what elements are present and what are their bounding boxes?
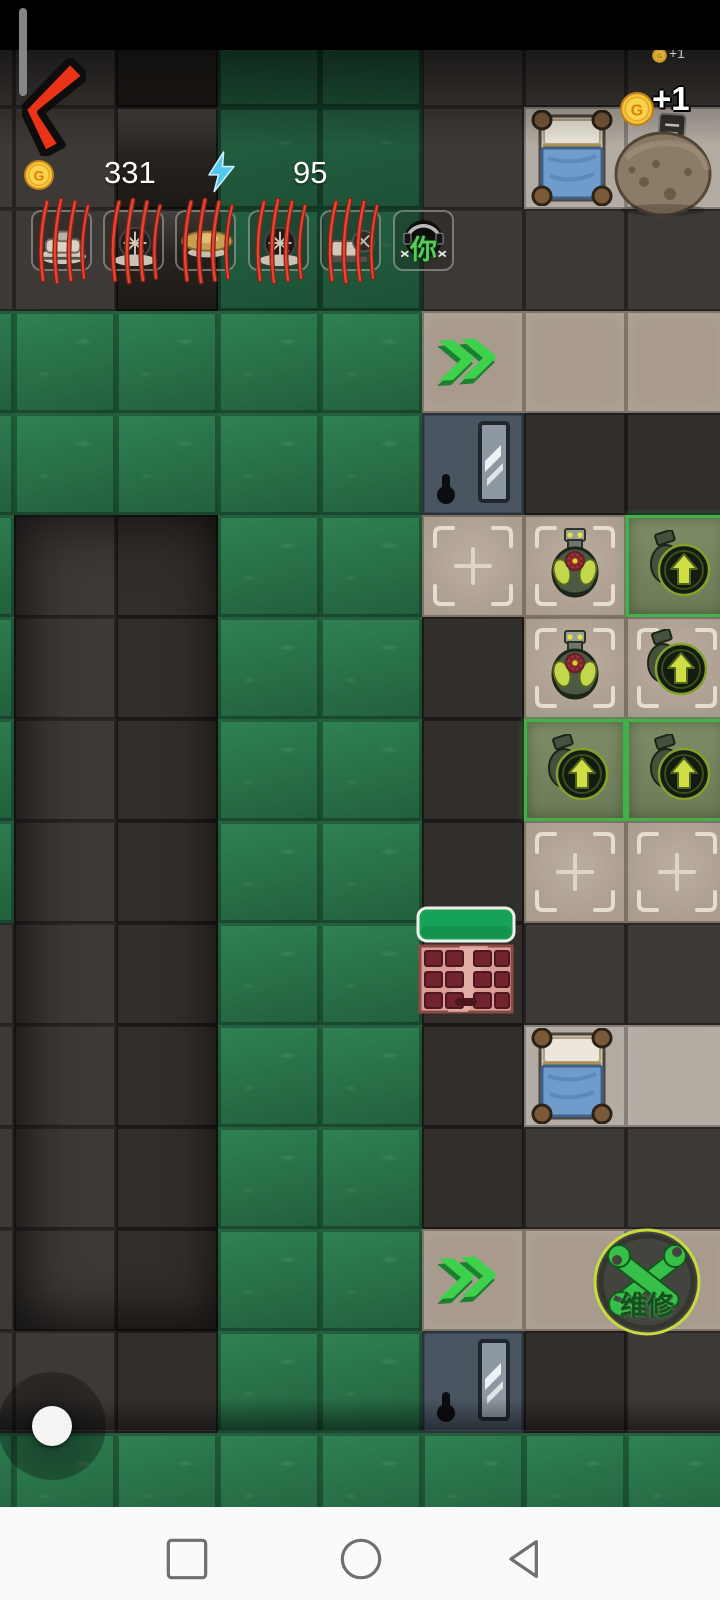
grass-tile xyxy=(320,617,422,719)
floor-tile-dark xyxy=(116,515,218,617)
grass-tile xyxy=(320,311,422,413)
grass-tile xyxy=(218,617,320,719)
grass-tile xyxy=(320,1025,422,1127)
grass-tile xyxy=(218,515,320,617)
grass-tile xyxy=(320,1127,422,1229)
grass-tile xyxy=(218,1127,320,1229)
build-slot-empty[interactable] xyxy=(626,821,720,923)
svg-text:G: G xyxy=(657,53,663,60)
joystick-knob[interactable] xyxy=(32,1406,72,1446)
grass-tile xyxy=(320,1229,422,1331)
floor-tile xyxy=(524,1127,626,1229)
floor-tile xyxy=(14,1229,116,1331)
grass-tile-dark xyxy=(320,107,422,209)
floor-tile xyxy=(626,923,720,1025)
slot-bomb-turret[interactable] xyxy=(524,617,626,719)
floor-tile xyxy=(0,1127,14,1229)
floor-tile xyxy=(14,1025,116,1127)
energy-value: 95 xyxy=(293,155,327,191)
grass-tile xyxy=(0,413,14,515)
grass-tile xyxy=(320,923,422,1025)
grass-tile xyxy=(320,515,422,617)
back-triangle-icon[interactable] xyxy=(503,1535,551,1583)
speed-arrows-icon xyxy=(438,330,502,390)
floor-tile-dark xyxy=(116,617,218,719)
floor-tile xyxy=(524,209,626,311)
floor-tile-dark xyxy=(116,1229,218,1331)
unit-slot-2[interactable] xyxy=(103,210,164,271)
grass-tile xyxy=(0,719,14,821)
floor-tile-dark xyxy=(422,719,524,821)
door-tile xyxy=(422,1331,524,1433)
android-navbar xyxy=(0,1507,720,1600)
slot-bomb-upgrade-active[interactable] xyxy=(524,719,626,821)
floor-tile xyxy=(14,821,116,923)
floor-tile-dark xyxy=(626,413,720,515)
grass-tile xyxy=(320,1331,422,1433)
repair-label: 维修 xyxy=(591,1284,703,1323)
floor-tile xyxy=(0,107,14,209)
floor-tile-dark xyxy=(116,1331,218,1433)
small-coin-icon: G xyxy=(652,48,667,63)
floor-tile xyxy=(14,1127,116,1229)
floor-tile xyxy=(626,209,720,311)
grass-tile xyxy=(0,617,14,719)
slot-bomb-upgrade[interactable] xyxy=(626,617,720,719)
floor-tile-dark xyxy=(524,1331,626,1433)
boulder-with-sign xyxy=(608,112,718,217)
floor-tile xyxy=(14,923,116,1025)
slot-bomb-upgrade-active[interactable] xyxy=(626,719,720,821)
coin-icon: G xyxy=(24,160,54,190)
brick-barricade-with-health-bar xyxy=(416,906,516,1016)
floor-tile xyxy=(14,719,116,821)
room-tile xyxy=(626,1025,720,1127)
floor-tile xyxy=(14,515,116,617)
grass-tile xyxy=(218,923,320,1025)
build-slot-empty[interactable] xyxy=(422,515,524,617)
grass-tile xyxy=(218,413,320,515)
door-tile xyxy=(422,413,524,515)
unit-slot-1[interactable] xyxy=(31,210,92,271)
reward-coin-icon: G xyxy=(620,92,654,126)
joystick[interactable] xyxy=(0,1372,106,1480)
coin-reward-text: +1 xyxy=(652,80,690,118)
floor-tile-dark xyxy=(116,821,218,923)
svg-text:G: G xyxy=(34,168,45,184)
grass-tile xyxy=(0,311,14,413)
status-bar xyxy=(0,0,720,50)
energy-lightning-icon xyxy=(208,151,235,192)
grass-tile xyxy=(218,1331,320,1433)
floor-tile-dark xyxy=(422,1025,524,1127)
floor-tile-dark xyxy=(116,1025,218,1127)
slot-bomb-turret[interactable] xyxy=(524,515,626,617)
path-tile xyxy=(626,311,720,413)
scroll-indicator xyxy=(19,8,27,96)
grass-tile xyxy=(218,1229,320,1331)
grass-tile xyxy=(320,719,422,821)
build-slot-empty[interactable] xyxy=(524,821,626,923)
floor-tile xyxy=(626,1127,720,1229)
floor-tile-dark xyxy=(116,923,218,1025)
floor-tile xyxy=(0,209,14,311)
grass-tile xyxy=(218,1025,320,1127)
unit-slot-5[interactable] xyxy=(320,210,381,271)
floor-tile xyxy=(626,1331,720,1433)
grass-tile xyxy=(218,311,320,413)
unit-slot-3[interactable] xyxy=(175,210,236,271)
floor-tile-dark xyxy=(116,719,218,821)
grass-tile xyxy=(14,413,116,515)
grass-tile xyxy=(320,413,422,515)
floor-tile-dark xyxy=(422,1127,524,1229)
floor-tile-dark xyxy=(116,1127,218,1229)
back-button[interactable] xyxy=(22,58,86,156)
floor-tile xyxy=(14,617,116,719)
grass-tile xyxy=(218,719,320,821)
floor-tile-dark xyxy=(524,413,626,515)
bed xyxy=(530,110,614,206)
floor-tile xyxy=(0,1025,14,1127)
coins-value: 331 xyxy=(104,155,156,191)
you-label: 你 xyxy=(395,228,452,267)
grass-tile xyxy=(0,515,14,617)
unit-slot-4[interactable] xyxy=(248,210,309,271)
back-arrow-icon xyxy=(22,58,86,156)
repair-button[interactable]: 维修 xyxy=(591,1226,703,1338)
floor-tile xyxy=(0,923,14,1025)
bed xyxy=(530,1028,614,1124)
floor-tile-dark xyxy=(422,617,524,719)
grass-tile xyxy=(218,821,320,923)
slot-bomb-upgrade-active[interactable] xyxy=(626,515,720,617)
game-screen: 维修 G 331 95 G +1 G +1 xyxy=(0,0,720,1600)
unit-slot-you[interactable]: 你 xyxy=(393,210,454,271)
floor-tile xyxy=(524,923,626,1025)
grass-tile xyxy=(14,311,116,413)
grass-tile xyxy=(0,821,14,923)
grass-tile xyxy=(116,311,218,413)
recents-square-icon[interactable] xyxy=(163,1535,211,1583)
grass-tile xyxy=(320,821,422,923)
grass-tile xyxy=(116,413,218,515)
speed-arrows-icon xyxy=(438,1248,502,1308)
floor-tile xyxy=(422,107,524,209)
svg-text:G: G xyxy=(631,102,643,119)
home-circle-icon[interactable] xyxy=(337,1535,385,1583)
floor-tile xyxy=(0,1229,14,1331)
path-tile xyxy=(524,311,626,413)
